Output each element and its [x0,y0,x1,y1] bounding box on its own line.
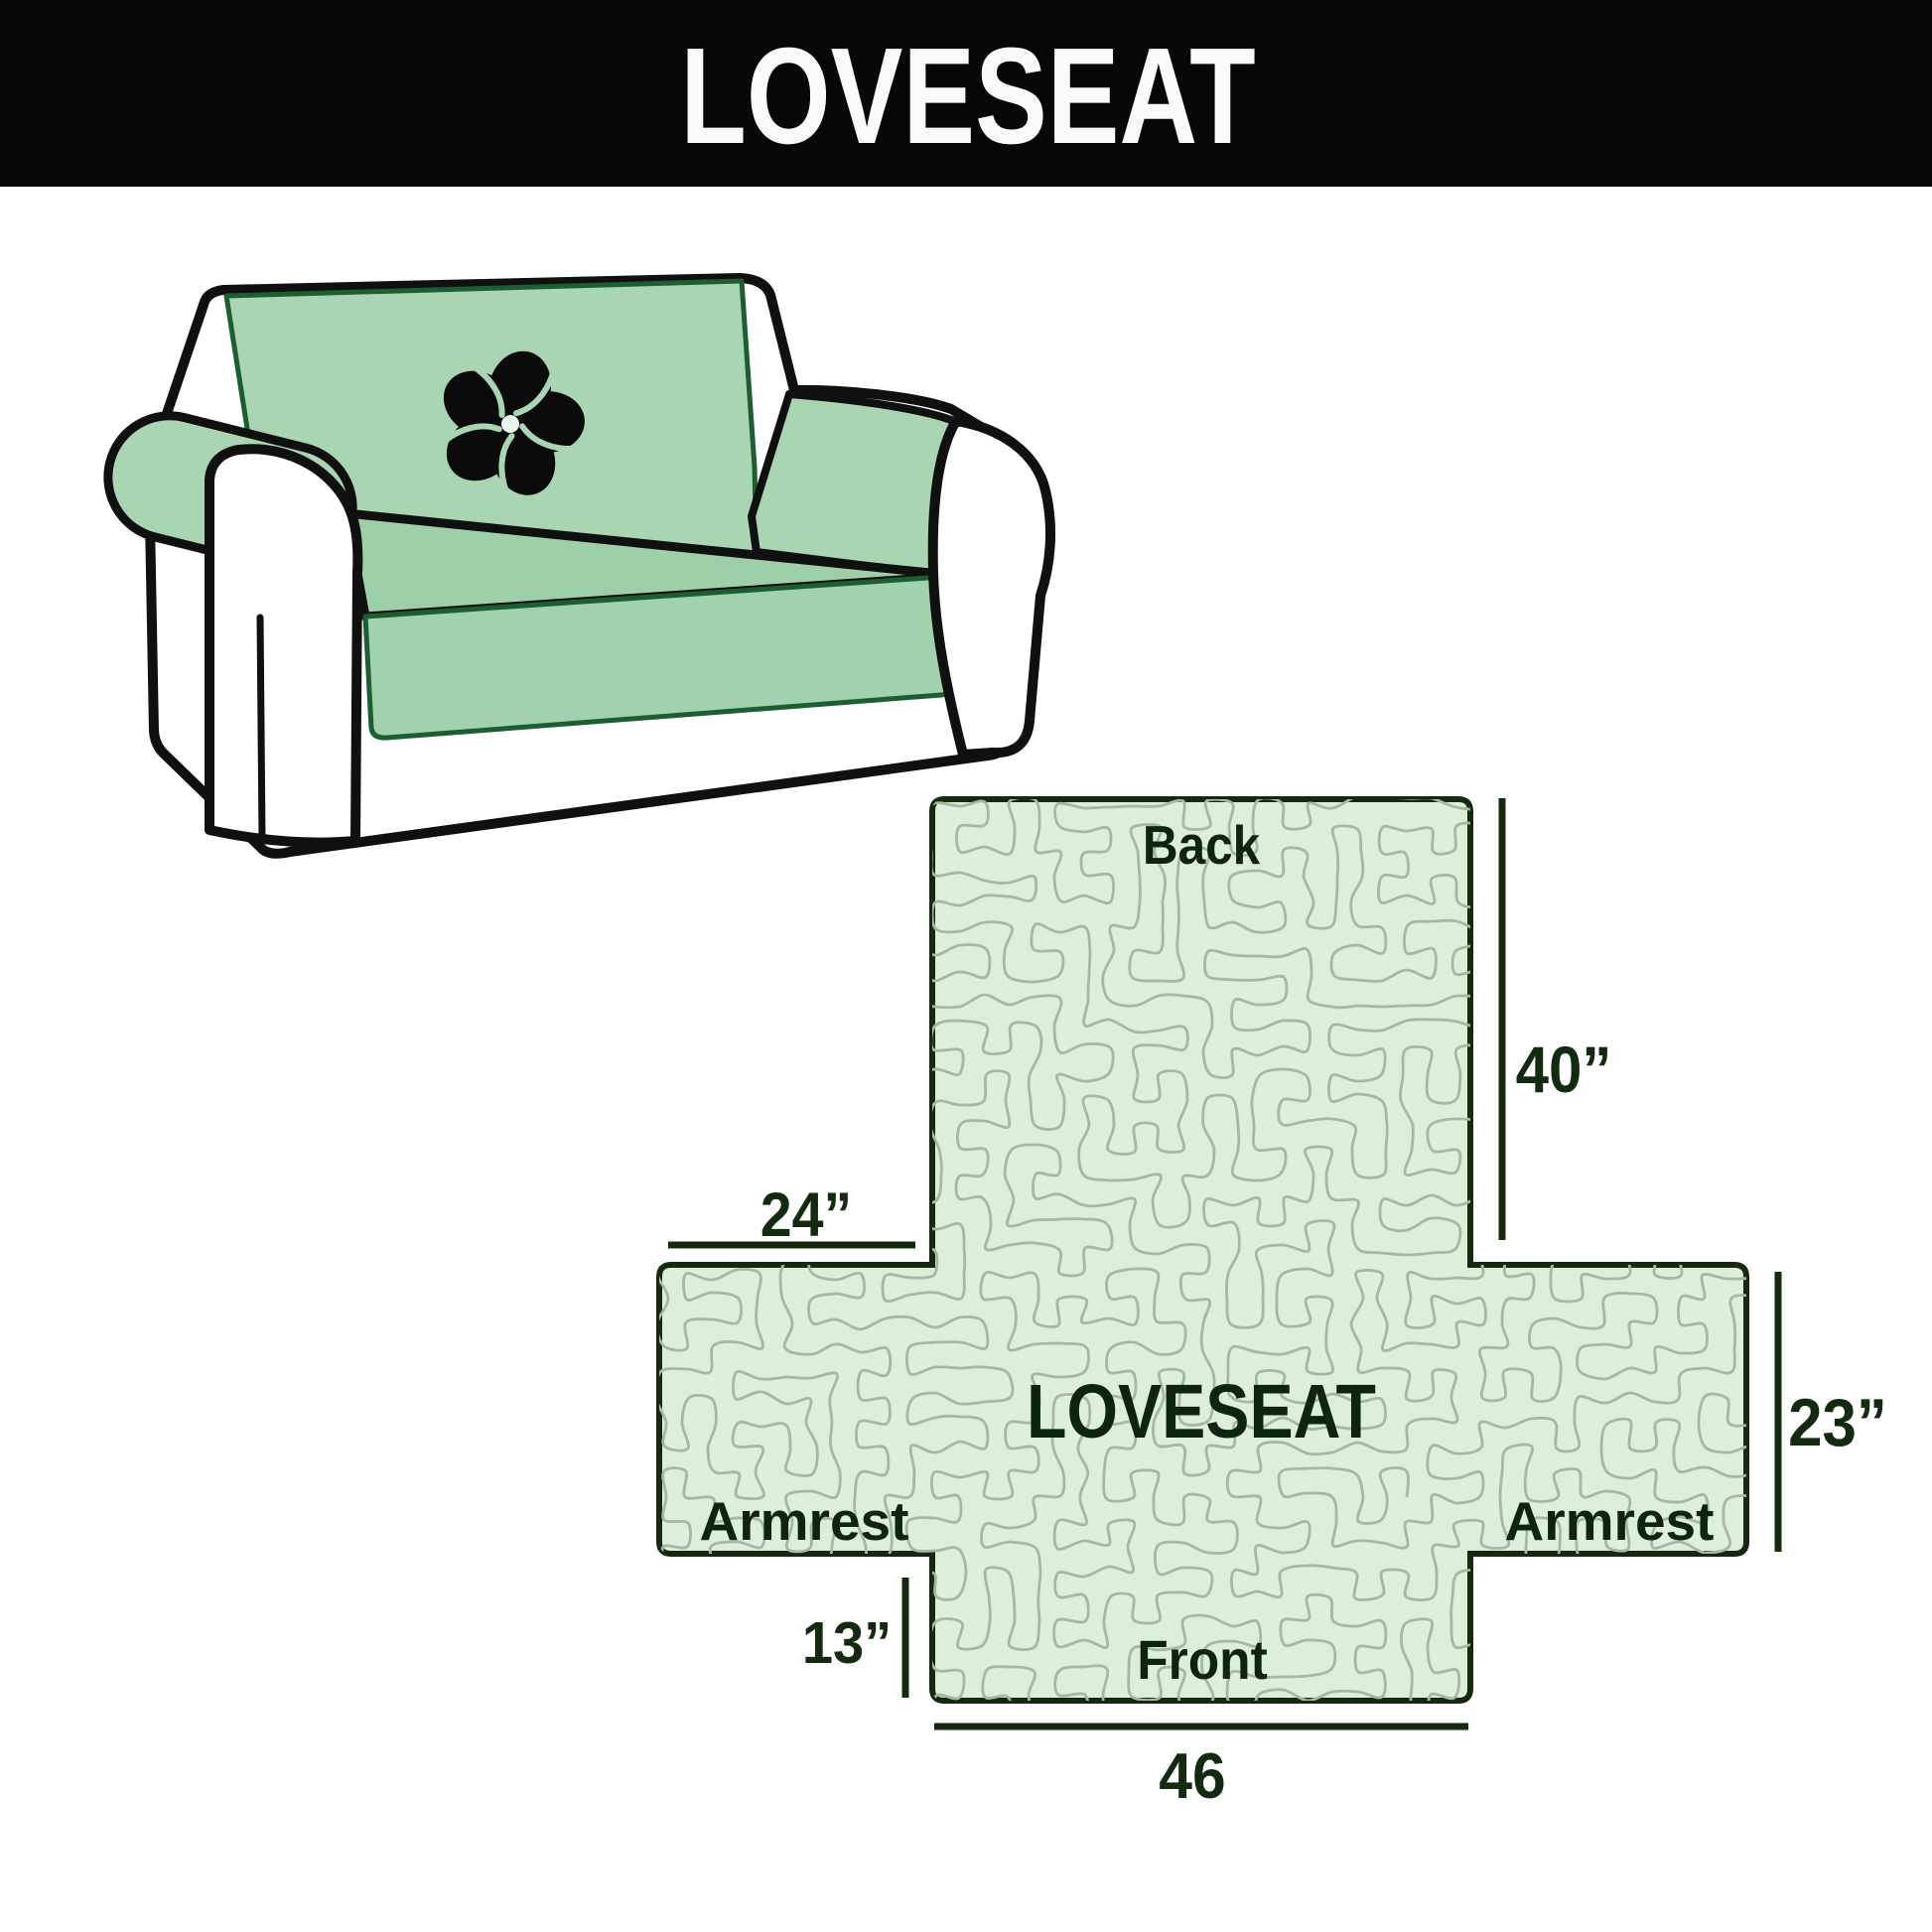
svg-text:Back: Back [1143,816,1261,877]
svg-text:13”: 13” [802,1611,892,1677]
svg-text:Front: Front [1137,1629,1268,1691]
svg-text:24”: 24” [760,1178,852,1249]
svg-text:LOVESEAT: LOVESEAT [680,20,1255,173]
svg-text:46: 46 [1159,1740,1225,1812]
svg-text:LOVESEAT: LOVESEAT [1027,1369,1376,1454]
svg-text:23”: 23” [1788,1384,1887,1459]
svg-text:40”: 40” [1516,1034,1612,1106]
svg-text:Armrest: Armrest [700,1490,909,1552]
svg-text:Armrest: Armrest [1505,1490,1715,1552]
